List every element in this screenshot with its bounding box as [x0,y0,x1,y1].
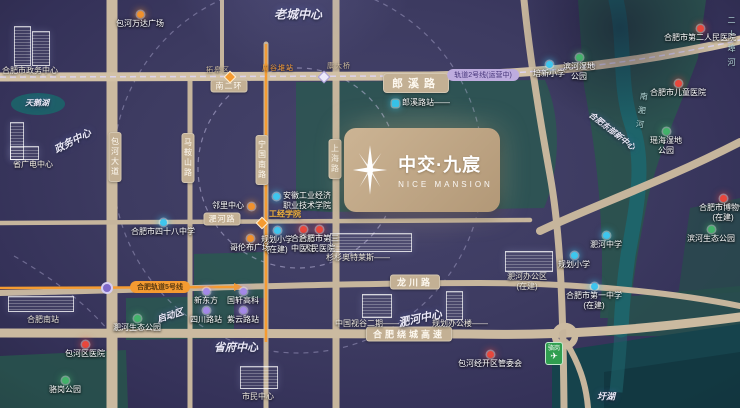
building-label-feihebangongqu: 淝河办公区(在建) [507,272,547,291]
school-marker-dot [546,61,553,68]
hospital-marker-dot [82,341,89,348]
poi-label: 淝河生态公园 [113,323,161,333]
poi-label: 合肥市第三人民医院 [299,234,339,253]
station-line5-node [99,280,116,297]
poi-label: 合肥市第一中学(在建) [566,291,622,310]
commercial-marker-dot [248,203,255,210]
school-marker-dot [571,252,578,259]
school-marker-dot [273,193,280,200]
project-name-cn: 中交·九宸 [398,151,493,177]
building-label-zhengwubuilding: 合肥市政务中心 [2,66,58,76]
company-marker-dot [240,307,247,314]
district-label-yuhu: 圩湖 [597,390,615,403]
poi-label: 包河万达广场 [116,19,164,29]
road-text-zhouguduizhan: 周谷堆站 [262,63,294,73]
poi-label: 瑶海湿地公园 [650,136,682,155]
district-label-tianehu: 天鹅湖 [25,98,49,109]
poi-label: 包河经开区管委会 [458,359,522,369]
poi-label: 安徽工业经济职业技术学院 [283,191,331,210]
road-badge-longchuanlu: 龙川路 [390,275,440,290]
poi-label: 合肥市第二人民医院 [664,33,736,43]
road-badge-ningguonanlu: 宁国南路 [256,135,269,185]
poi-label: 滨河生态公园 [687,234,735,244]
hospital-marker-dot [675,80,682,87]
park-marker-dot [62,377,69,384]
school-marker-dot [603,232,610,239]
project-logo-card: 中交·九宸 NICE MANSION [344,128,500,212]
poi-label: 紫云路站 [227,315,259,325]
company-marker-dot [203,307,210,314]
poi-label: 四川路站 [190,315,222,325]
metro-marker-dot [392,100,399,107]
building-label-shanshanaotelaisi: 杉杉奥特莱斯—— [326,253,390,263]
poi-label: 哥伦布广场 [230,243,270,253]
district-label-zhengwuzhongxin: 政务中心 [51,124,93,156]
company-marker-dot [203,288,210,295]
transit-pill-line5: 合肥轨道5号线 [130,281,190,293]
poi-label: 规划小学 [558,260,590,270]
hospital-marker-dot [487,351,494,358]
district-label-shengfuzhongxin: 省府中心 [214,339,258,355]
park-marker-dot [708,226,715,233]
building-label-zhongguoshigu: 中国视谷二期—— [335,319,399,329]
park-marker-dot [663,128,670,135]
building-label-guihuabangonglou: 规划办公楼—— [432,319,488,329]
road-badge-feihelu: 淝河路 [204,213,241,226]
hospital-marker-dot [697,25,704,32]
commercial-marker-dot [137,11,144,18]
hospital-marker-dot [316,226,323,233]
building-label-hefeinanzhan: 合肥南站 [27,315,59,325]
school-marker-dot [591,283,598,290]
poi-label: 淝河中学 [590,240,622,250]
poi-label: 骆岗公园 [49,385,81,395]
park-marker-dot [576,54,583,61]
poi-label: 培新小学 [533,69,565,79]
poi-label: 邻里中心 [212,201,244,211]
district-label-dongbuxinzhongxin: 合肥东部新中心 [587,109,638,152]
road-badge-langxilu: 郎溪路 [383,73,449,93]
building-label-shiminzhongxin: 市民中心 [242,392,274,402]
road-badge-maanshanlu: 马鞍山路 [182,133,195,183]
road-badge-baohedadao: 包河大道 [109,132,122,182]
poi-label: 滨河湿地公园 [563,62,595,81]
river-label-nanfeihe: 南淝河 [633,91,650,134]
poi-label: 合肥市儿童医院 [650,88,706,98]
transit-pill-line2: 轨道2号线(运营中) [447,69,519,81]
road-badge-shanghailu: 上海路 [329,139,342,179]
building-label-shengguangdianzhongxin: 省广电中心 [13,160,53,170]
poi-label: 郎溪路站—— [402,98,450,108]
road-badge-raochenggaosu: 合肥绕城高速 [366,327,452,342]
poi-label: 合肥市四十八中学 [131,227,195,237]
district-label-laochengzhongxin: 老城中心 [274,6,322,23]
school-marker-dot [274,227,281,234]
poi-label: 国轩高科 [227,296,259,306]
company-marker-dot [240,288,247,295]
project-name-en: NICE MANSION [398,180,493,189]
river-label-ershipuhe: 二十埠河 [726,16,737,72]
park-marker-dot [134,315,141,322]
compass-star-icon [351,143,389,197]
poi-label: 合肥市博物馆(在建) [699,203,740,222]
station-shanghailu-crossing [318,71,331,84]
road-text-kangdaqiao: 康大桥 [327,61,351,71]
airport-badge: 骆岗✈ [545,342,563,365]
hospital-marker-dot [720,195,727,202]
location-map: 南二环郎溪路龙川路合肥绕城高速淝河路包河大道马鞍山路宁国南路上海路拓皋区康大桥周… [0,0,740,408]
poi-label: 新东方 [194,296,218,306]
station-gongjingxueyuan-station [256,217,269,230]
school-marker-dot [160,219,167,226]
project-name-block: 中交·九宸 NICE MANSION [398,151,493,189]
poi-label: 包河区医院 [65,349,105,359]
hospital-marker-dot [300,226,307,233]
airplane-icon: ✈ [550,352,558,361]
commercial-marker-dot [247,235,254,242]
